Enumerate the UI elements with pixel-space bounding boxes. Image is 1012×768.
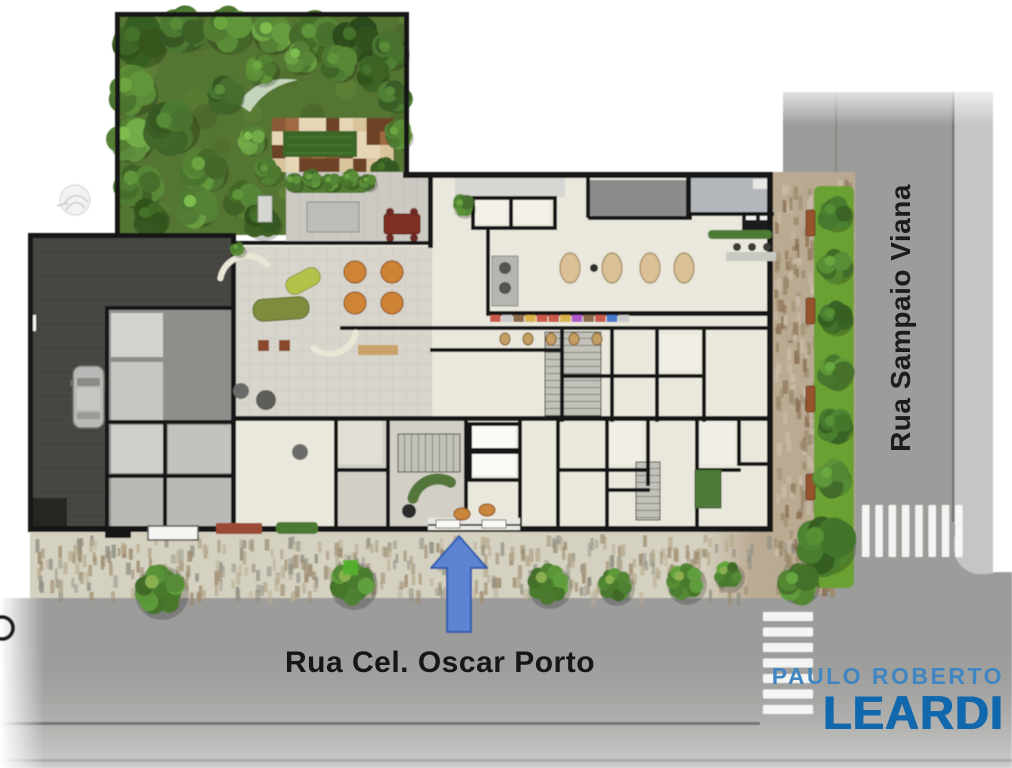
brand-logo: PAULO ROBERTO LEARDI xyxy=(772,664,1004,737)
tree xyxy=(817,408,854,444)
bench xyxy=(806,386,815,412)
bench xyxy=(806,210,815,236)
canopy xyxy=(148,526,198,540)
bottom-curb-line xyxy=(0,722,760,725)
roof xyxy=(590,180,686,216)
far-sidewalk xyxy=(954,92,994,524)
pergola xyxy=(307,202,359,232)
garage xyxy=(28,238,231,528)
street-label-right: Rua Sampaio Viana xyxy=(885,184,917,452)
bench xyxy=(806,298,815,324)
brand-logo-line2: LEARDI xyxy=(772,688,1004,737)
awning xyxy=(216,523,262,534)
site-plan-image: Rua Cel. Oscar Porto Rua Sampaio Viana P… xyxy=(0,0,1012,768)
stairs xyxy=(398,434,460,472)
car xyxy=(71,366,107,428)
terrace-dining-table xyxy=(384,214,420,234)
faded-tree-symbol xyxy=(57,185,90,215)
street-label-bottom: Rua Cel. Oscar Porto xyxy=(235,646,645,680)
roof xyxy=(455,177,565,197)
brand-logo-line1: PAULO ROBERTO xyxy=(772,664,1004,688)
